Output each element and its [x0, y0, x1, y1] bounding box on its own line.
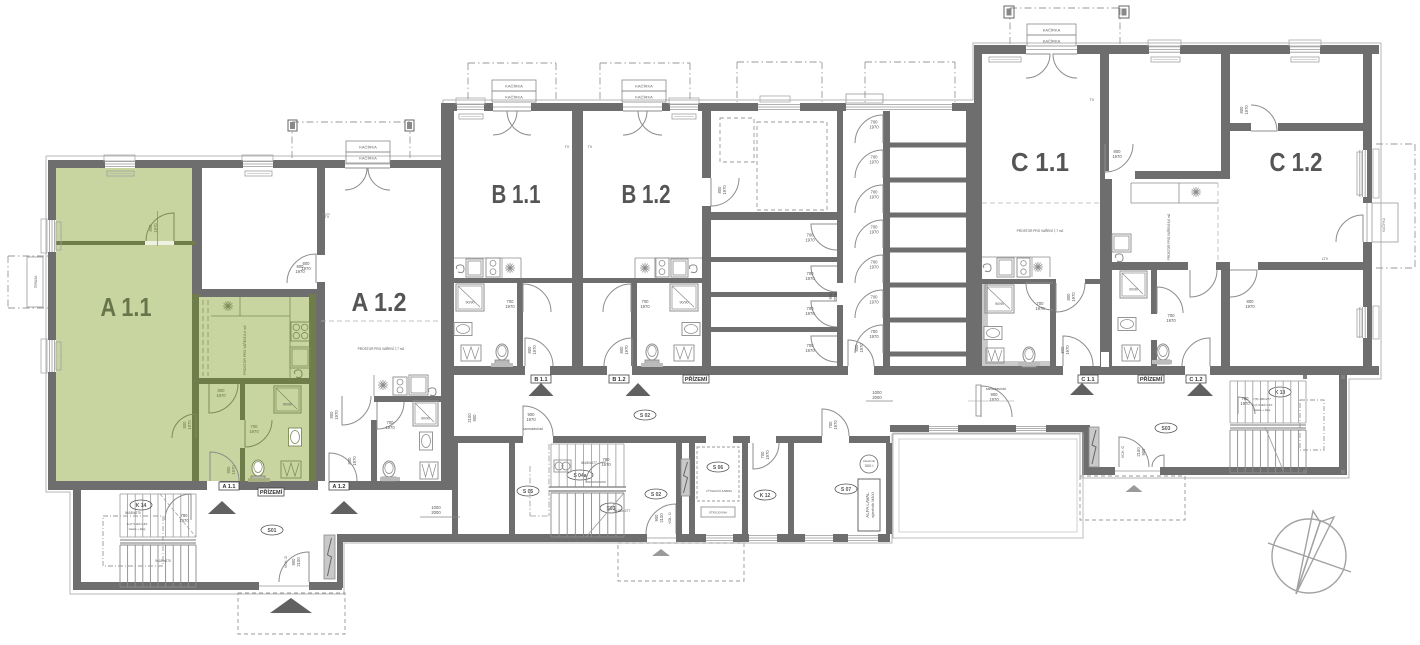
svg-text:K 14: K 14 — [136, 503, 147, 509]
svg-text:výměník MAXI: výměník MAXI — [870, 492, 875, 518]
svg-text:90/90: 90/90 — [995, 302, 1004, 306]
svg-text:1970: 1970 — [295, 269, 305, 274]
svg-text:1970: 1970 — [334, 410, 339, 420]
svg-text:TV: TV — [325, 215, 330, 219]
svg-text:1970: 1970 — [1166, 318, 1176, 323]
svg-text:1970: 1970 — [640, 304, 650, 309]
svg-text:A 1.2: A 1.2 — [333, 484, 346, 490]
svg-text:KAČÍRKA: KAČÍRKA — [635, 84, 653, 89]
svg-text:B 1.2: B 1.2 — [622, 179, 671, 209]
svg-text:1970: 1970 — [869, 300, 879, 305]
svg-text:1970: 1970 — [532, 345, 537, 355]
svg-text:90/90: 90/90 — [466, 301, 475, 305]
svg-text:KAČÍRKA: KAČÍRKA — [1043, 28, 1061, 33]
svg-text:VÝTAHOVÁ KABINA: VÝTAHOVÁ KABINA — [706, 489, 732, 493]
svg-text:1970: 1970 — [805, 238, 815, 243]
svg-text:1970: 1970 — [833, 420, 838, 430]
svg-text:90/90: 90/90 — [283, 403, 292, 407]
svg-text:1970: 1970 — [385, 425, 395, 430]
svg-text:KAČÍRKA: KAČÍRKA — [1381, 217, 1386, 232]
svg-text:1970: 1970 — [187, 420, 192, 430]
svg-text:300 l: 300 l — [865, 463, 874, 468]
svg-text:C 1.1: C 1.1 — [1081, 377, 1094, 383]
svg-text:1970: 1970 — [624, 345, 629, 355]
svg-text:1970: 1970 — [859, 343, 864, 353]
svg-text:1970: 1970 — [722, 185, 727, 195]
svg-text:1970: 1970 — [601, 462, 611, 467]
svg-text:1970: 1970 — [249, 429, 259, 434]
svg-text:STROJOVNA: STROJOVNA — [709, 511, 727, 515]
svg-text:1970: 1970 — [805, 276, 815, 281]
svg-text:VCH. D: VCH. D — [1121, 446, 1125, 459]
svg-text:90/90: 90/90 — [1129, 288, 1138, 292]
svg-text:C 1.2: C 1.2 — [1189, 377, 1202, 383]
svg-text:1970: 1970 — [231, 465, 236, 475]
svg-text:závěs + klip): závěs + klip) — [129, 527, 146, 531]
svg-text:TV: TV — [1090, 98, 1095, 102]
svg-text:S 07: S 07 — [841, 487, 852, 493]
svg-text:S03: S03 — [1162, 426, 1171, 432]
svg-text:1970: 1970 — [1245, 304, 1255, 309]
svg-text:závěs + klip): závěs + klip) — [1254, 408, 1271, 412]
svg-text:B 1.1: B 1.1 — [534, 377, 547, 383]
svg-text:1970: 1970 — [1244, 105, 1249, 115]
svg-text:S 05: S 05 — [523, 489, 534, 495]
svg-text:1970: 1970 — [805, 348, 815, 353]
svg-text:B 1.1: B 1.1 — [492, 179, 541, 209]
svg-text:S 06: S 06 — [713, 465, 724, 471]
svg-text:PROSTOR PRO VAŘENÍ 8,6 m2: PROSTOR PRO VAŘENÍ 8,6 m2 — [1166, 213, 1171, 260]
svg-text:VCH. D: VCH. D — [284, 556, 288, 569]
svg-text:samozavírač: samozavírač — [986, 387, 1007, 391]
svg-text:2x(7,5 dílů GFF: 2x(7,5 dílů GFF — [127, 522, 148, 526]
svg-text:TV: TV — [588, 145, 593, 149]
svg-text:1970: 1970 — [1240, 401, 1250, 406]
svg-text:A 1.2: A 1.2 — [352, 287, 407, 317]
svg-text:1970: 1970 — [805, 311, 815, 316]
svg-text:1970: 1970 — [1071, 292, 1076, 302]
svg-text:900: 900 — [472, 414, 477, 422]
svg-text:1970: 1970 — [1035, 306, 1045, 311]
svg-text:B 1.2: B 1.2 — [612, 377, 625, 383]
svg-text:2100: 2100 — [296, 557, 301, 567]
svg-text:90/90: 90/90 — [421, 417, 430, 421]
svg-text:2000: 2000 — [872, 395, 882, 400]
svg-text:1970: 1970 — [869, 230, 879, 235]
svg-text:K 13: K 13 — [1275, 390, 1286, 396]
svg-text:1970: 1970 — [153, 223, 158, 233]
svg-text:PROSTOR PRO VAŘENÍ 7,7 m2: PROSTOR PRO VAŘENÍ 7,7 m2 — [1017, 228, 1064, 233]
svg-text:PROSTOR PRO VAŘENÍ 8,6 m2: PROSTOR PRO VAŘENÍ 8,6 m2 — [242, 325, 247, 375]
svg-text:1970: 1970 — [869, 265, 879, 270]
svg-text:VOL. D: VOL. D — [668, 512, 672, 524]
svg-text:KAČÍRKA: KAČÍRKA — [1043, 39, 1061, 44]
svg-text:1970: 1970 — [1112, 154, 1122, 159]
svg-text:KAČÍRKA: KAČÍRKA — [359, 145, 377, 150]
svg-text:KAČÍRKA: KAČÍRKA — [635, 95, 653, 100]
svg-text:PŘÍZEMÍ: PŘÍZEMÍ — [260, 488, 283, 496]
svg-text:2030: 2030 — [833, 291, 838, 301]
svg-text:90/90: 90/90 — [680, 301, 689, 305]
svg-text:2100: 2100 — [659, 513, 664, 523]
svg-text:KAČÍRKA: KAČÍRKA — [359, 156, 377, 161]
svg-text:PŘÍZEMÍ: PŘÍZEMÍ — [685, 375, 708, 383]
svg-text:8x180x277: 8x180x277 — [581, 461, 597, 465]
svg-text:9x180x270: 9x180x270 — [155, 559, 171, 563]
svg-text:PŘÍZEMÍ: PŘÍZEMÍ — [1140, 375, 1163, 383]
svg-text:PROSTOR PRO VAŘENÍ 7,7 m2: PROSTOR PRO VAŘENÍ 7,7 m2 — [358, 346, 405, 351]
svg-text:K 12: K 12 — [760, 493, 771, 499]
svg-text:1970: 1970 — [869, 160, 879, 165]
svg-text:1970: 1970 — [526, 417, 536, 422]
svg-text:1970: 1970 — [352, 456, 357, 466]
svg-text:S 02: S 02 — [651, 492, 662, 498]
svg-text:1970: 1970 — [869, 195, 879, 200]
svg-text:A 1.1: A 1.1 — [101, 292, 152, 322]
svg-text:1970: 1970 — [869, 125, 879, 130]
svg-text:KAČÍRKA: KAČÍRKA — [505, 95, 523, 100]
svg-text:S01: S01 — [268, 528, 277, 534]
svg-text:KAČÍRKA: KAČÍRKA — [505, 84, 523, 89]
svg-text:1970: 1970 — [216, 393, 226, 398]
svg-text:LTV: LTV — [1322, 257, 1329, 261]
svg-text:1970: 1970 — [869, 334, 879, 339]
svg-text:1970: 1970 — [505, 304, 515, 309]
svg-text:7(6) 180x277: 7(6) 180x277 — [1253, 397, 1271, 401]
svg-text:A 1.1: A 1.1 — [223, 484, 236, 490]
svg-text:900: 900 — [1141, 448, 1146, 456]
svg-text:S 02: S 02 — [640, 413, 651, 419]
svg-text:8x180x270: 8x180x270 — [125, 511, 141, 515]
svg-text:TV: TV — [565, 145, 570, 149]
svg-text:TERASA: TERASA — [34, 275, 38, 289]
svg-text:C 1.2: C 1.2 — [1270, 147, 1323, 177]
svg-text:C 1.1: C 1.1 — [1011, 147, 1069, 177]
svg-text:samozavírač: samozavírač — [523, 427, 544, 431]
svg-text:2x(7,5 dílů GFF: 2x(7,5 dílů GFF — [1252, 403, 1273, 407]
svg-text:1970: 1970 — [765, 450, 770, 460]
svg-text:1970: 1970 — [1065, 345, 1070, 355]
svg-text:2000: 2000 — [431, 510, 441, 515]
